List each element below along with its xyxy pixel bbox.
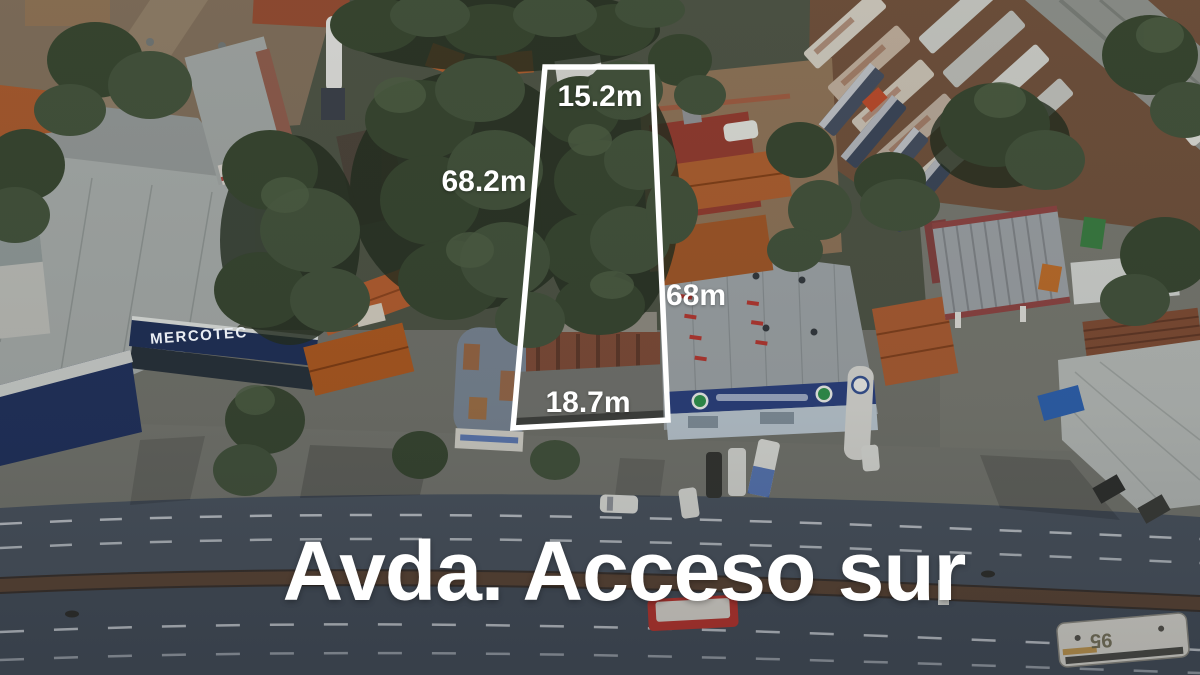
aerial-photo: MERCOTEC 95 15.2m 68.2m 68m 18.7m Avda. …	[0, 0, 1200, 675]
measurement-bottom: 18.7m	[508, 387, 668, 419]
measurement-left: 68.2m	[404, 166, 564, 198]
measurement-right: 68m	[636, 280, 756, 312]
measurement-top: 15.2m	[520, 81, 680, 113]
bus-roof-number: 95	[1089, 627, 1112, 651]
street-name-label: Avda. Acceso sur	[24, 529, 1200, 613]
